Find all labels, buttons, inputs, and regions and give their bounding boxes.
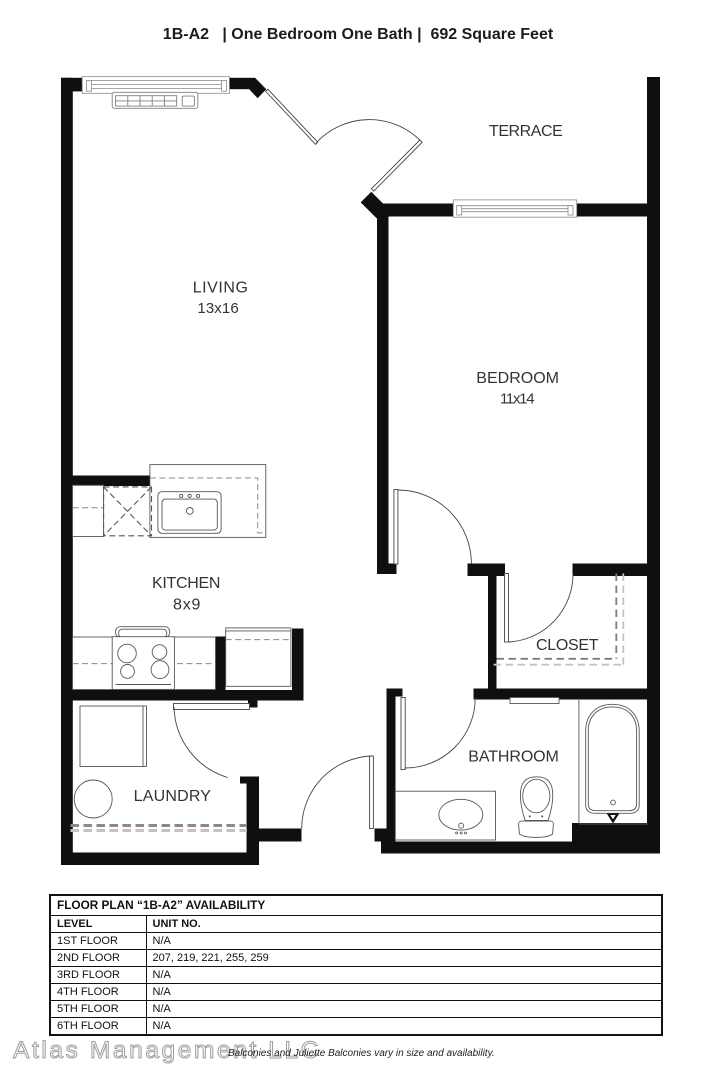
svg-text:8x9: 8x9 xyxy=(173,596,201,613)
svg-text:KITCHEN: KITCHEN xyxy=(152,575,220,592)
svg-text:CLOSET: CLOSET xyxy=(536,637,599,654)
svg-text:LAUNDRY: LAUNDRY xyxy=(134,788,212,805)
svg-text:BATHROOM: BATHROOM xyxy=(468,748,558,765)
svg-text:TERRACE: TERRACE xyxy=(489,123,562,140)
svg-text:11x14: 11x14 xyxy=(500,391,534,408)
svg-text:13x16: 13x16 xyxy=(197,300,238,317)
svg-text:BEDROOM: BEDROOM xyxy=(476,370,559,387)
svg-text:LIVING: LIVING xyxy=(193,279,249,296)
